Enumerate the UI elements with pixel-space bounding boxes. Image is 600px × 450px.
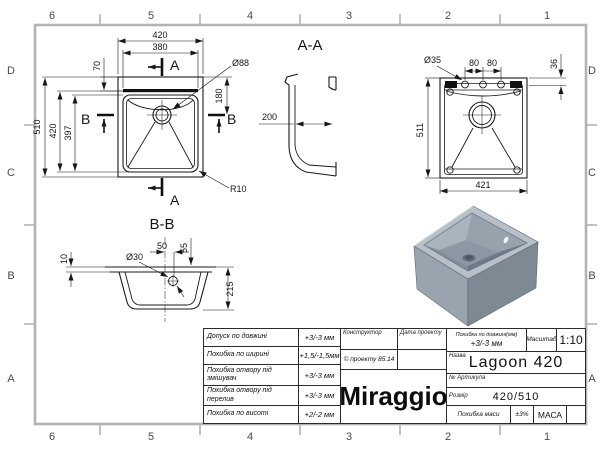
tolerance-value: +3/-3 мм (305, 371, 335, 380)
tolerance-label: Похибка отвору під перелив (204, 387, 298, 403)
section-bb-label: B-B (149, 216, 174, 233)
zone-label: D (7, 65, 15, 77)
dim-label: 421 (475, 180, 490, 190)
plan-dim-labels: 420 380 70 Ø88 180 510 420 397 R10 A A B… (32, 30, 249, 208)
mass-tolerance-value: ±3% (516, 411, 529, 419)
zone-label: 3 (346, 431, 352, 443)
section-aa-view (285, 74, 336, 176)
scale-label: Масштаб (526, 336, 556, 344)
project-date-label: Дата проекту (400, 330, 442, 336)
project-note: © проекту 85.14 (344, 356, 395, 364)
zone-label: B (588, 270, 595, 282)
dim-label: 80 (487, 58, 497, 68)
tolerance-label: Допуск по довжині (204, 333, 298, 341)
tolerance-value: +2/-2 мм (305, 410, 335, 419)
dim-label: 70 (92, 61, 102, 71)
scale-value: 1:10 (559, 333, 582, 347)
article-cell: № Артикула (446, 373, 586, 388)
size-cell: Розмір 420/510 (446, 387, 586, 406)
tolerance-value-cell: +2/-2 мм (298, 405, 341, 424)
product-name: Lagoon 420 (469, 354, 564, 372)
zone-label: 6 (49, 10, 55, 22)
mass-tolerance-label-cell: Похибка маси (446, 405, 511, 424)
dim-label: 50 (157, 241, 167, 251)
zone-label: C (588, 167, 596, 179)
constructor-cell: Конструктор (340, 328, 398, 350)
dim-label: Ø88 (232, 58, 249, 68)
zone-label: 3 (346, 10, 352, 22)
zone-label: C (7, 167, 15, 179)
tolerance-value-cell: +3/-3 мм (298, 328, 341, 347)
mass-label: МАСА (538, 410, 562, 420)
project-date-cell: Дата проекту (397, 328, 447, 350)
article-label: № Артикула (449, 375, 485, 381)
bottom-view (440, 78, 527, 178)
dim-label: 511 (415, 123, 425, 137)
project-note-cell: © проекту 85.14 (340, 349, 398, 370)
tolerance-label-cell: Допуск по довжині (203, 328, 299, 347)
tolerance-value-cell: +3/-3 мм (298, 364, 341, 386)
tolerance-label-cell: Похибка отвору під перелив (203, 385, 299, 406)
zone-label: 4 (247, 431, 253, 443)
plan-section-marks (97, 58, 225, 196)
dim-label: 420 (48, 123, 58, 138)
dim-label: 10 (59, 254, 69, 264)
tolerance-label-cell: Похибка по ширині (203, 346, 299, 365)
section-marker-a: A (170, 192, 180, 208)
logo-cell: Miraggio (340, 369, 447, 424)
length-tolerance-label: Похибка по довжині(мм) (456, 332, 518, 339)
dim-label: 510 (32, 119, 42, 134)
section-marker-b: B (81, 111, 90, 127)
zone-label: 4 (247, 10, 253, 22)
length-tolerance-cell: Похибка по довжині(мм) +3/-3 мм (446, 328, 527, 352)
drawing-sheet: 6 5 4 3 2 1 6 5 4 3 2 1 D C B A D C B A (0, 0, 600, 450)
dim-label: Ø35 (424, 55, 441, 65)
dim-label: 180 (214, 88, 224, 103)
section-marker-a: A (170, 57, 180, 73)
dim-label: Ø30 (126, 252, 143, 262)
constructor-label: Конструктор (343, 330, 382, 336)
tolerance-value: +3/-3 мм (305, 391, 335, 400)
dim-label: 36 (549, 59, 559, 69)
zone-label: 2 (445, 10, 451, 22)
dim-label: 80 (469, 58, 479, 68)
dim-label: R10 (230, 184, 247, 194)
tolerance-value: +3/-3 мм (305, 333, 335, 342)
section-bb-dim-labels: B-B 10 Ø30 50 55 215 (59, 216, 235, 297)
product-name-cell: Назва Lagoon 420 (446, 351, 586, 374)
zone-label: 5 (148, 10, 154, 22)
zone-label: 1 (544, 431, 550, 443)
length-tolerance-value: +3/-3 мм (471, 339, 503, 348)
zone-label: D (588, 65, 596, 77)
zone-label: B (7, 270, 14, 282)
zone-label: 6 (49, 431, 55, 443)
zone-label: 2 (445, 431, 451, 443)
dim-label: 420 (152, 30, 167, 40)
dim-label: 380 (152, 42, 167, 52)
zone-label: A (588, 373, 596, 385)
sink-3d-render (414, 206, 538, 326)
empty-cell (397, 349, 447, 370)
zone-label: 1 (544, 10, 550, 22)
scale-value-cell: 1:10 (556, 328, 586, 352)
dim-label: 397 (63, 125, 73, 140)
size-label: Розмір (449, 393, 468, 399)
product-name-label: Назва (449, 353, 466, 359)
zone-label: A (7, 373, 15, 385)
tolerance-value-cell: +3/-3 мм (298, 385, 341, 406)
brand-logo: Miraggio (339, 381, 447, 412)
tolerance-value: +1,5/-1,5мм (299, 351, 339, 360)
zone-label: 5 (148, 431, 154, 443)
tolerance-label: Похибка отвору під змішувач (204, 367, 298, 383)
dim-label: 55 (179, 243, 189, 253)
plan-view (118, 77, 203, 177)
bottom-view-dims (425, 54, 566, 194)
tolerance-label: Похибка по ширині (204, 351, 298, 359)
section-aa-label: A-A (297, 37, 322, 54)
tolerance-value-cell: +1,5/-1,5мм (298, 346, 341, 365)
tolerance-label-cell: Похибка отвору під змішувач (203, 364, 299, 386)
tolerance-label: Похибка по висоті (204, 410, 298, 418)
mass-tolerance-label: Похибка маси (457, 411, 499, 419)
section-bb-dims (66, 238, 234, 310)
empty-cell (566, 405, 586, 424)
section-marker-b: B (227, 111, 236, 127)
mass-tolerance-value-cell: ±3% (510, 405, 534, 424)
mass-label-cell: МАСА (533, 405, 567, 424)
tolerance-label-cell: Похибка по висоті (203, 405, 299, 424)
bottom-view-dim-labels: Ø35 80 80 36 511 421 (415, 55, 559, 190)
scale-label-cell: Масштаб (526, 328, 557, 352)
dim-label: 215 (225, 281, 235, 296)
size-value: 420/510 (493, 391, 540, 403)
dim-label: 200 (262, 112, 277, 122)
